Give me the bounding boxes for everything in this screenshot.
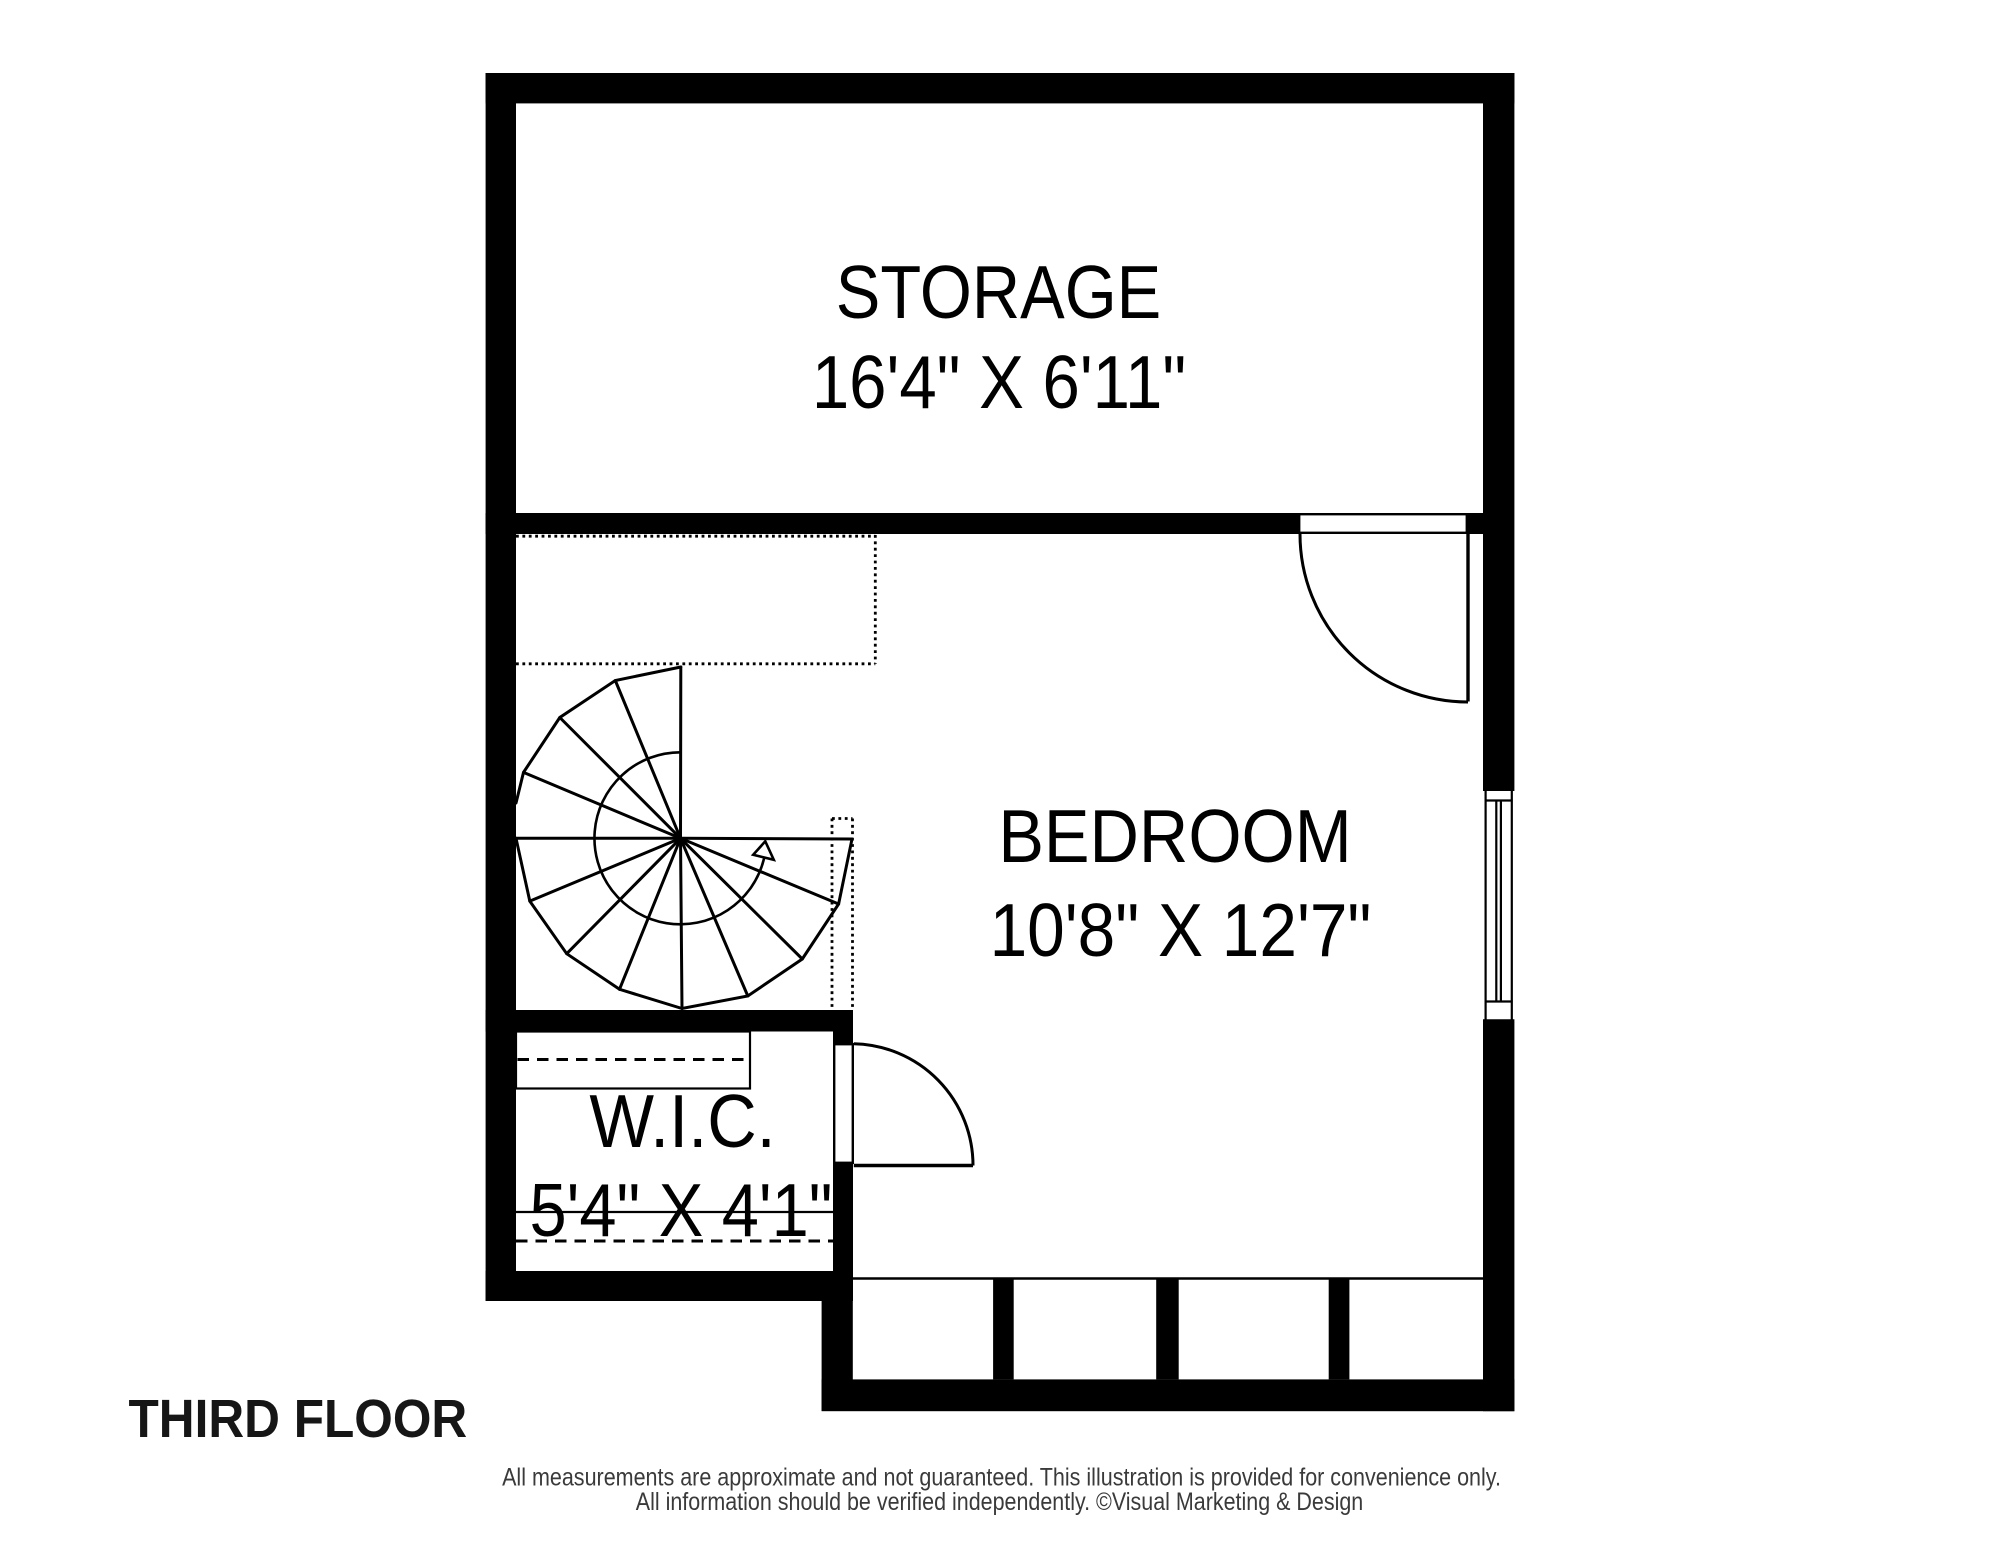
svg-text:5'4" X 4'1": 5'4" X 4'1" <box>530 1169 833 1252</box>
svg-text:STORAGE: STORAGE <box>836 251 1161 334</box>
svg-text:THIRD FLOOR: THIRD FLOOR <box>129 1388 468 1448</box>
svg-text:16'4" X 6'11": 16'4" X 6'11" <box>812 342 1186 425</box>
svg-text:All information should be veri: All information should be verified indep… <box>636 1487 1363 1515</box>
svg-text:10'8" X 12'7": 10'8" X 12'7" <box>990 889 1372 973</box>
svg-text:W.I.C.: W.I.C. <box>589 1080 775 1164</box>
svg-text:BEDROOM: BEDROOM <box>998 795 1351 879</box>
